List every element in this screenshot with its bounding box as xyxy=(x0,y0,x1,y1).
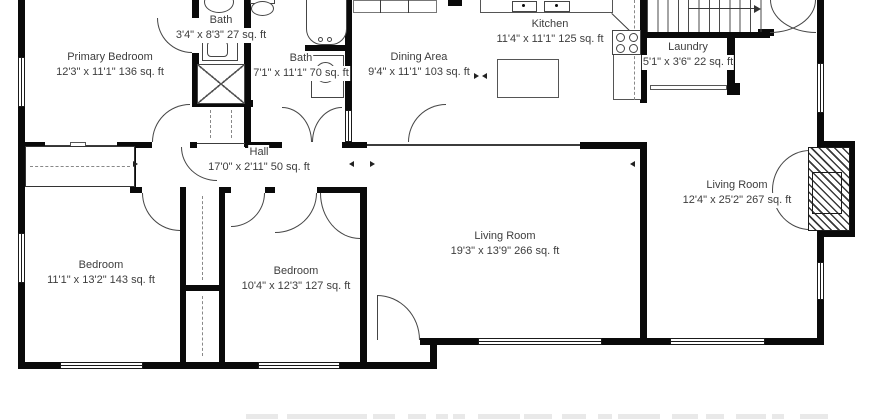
dimension-marker-icon xyxy=(630,161,635,167)
wall xyxy=(143,362,258,369)
room-label-hall: Hall17'0" x 2'11" 50 sq. ft xyxy=(207,145,311,175)
room-label-bedroom-1: Bedroom11'1" x 13'2" 143 sq. ft xyxy=(46,258,156,288)
window xyxy=(817,262,824,300)
wall xyxy=(130,187,142,193)
room-label-laundry: Laundry5'1" x 3'6" 22 sq. ft xyxy=(642,40,734,70)
room-name: Bath xyxy=(289,51,314,66)
dimension-marker-icon xyxy=(370,161,375,167)
room-dimensions: 12'4" x 25'2" 267 sq. ft xyxy=(682,193,793,208)
room-label-living-room-right: Living Room12'4" x 25'2" 267 sq. ft xyxy=(682,178,793,208)
wall xyxy=(342,142,367,148)
window xyxy=(60,362,143,369)
sliding-door xyxy=(650,85,727,90)
toilet xyxy=(204,0,234,13)
burner-icon xyxy=(629,44,638,53)
pocket-door xyxy=(345,110,352,142)
room-dimensions: 7'1" x 11'1" 70 sq. ft xyxy=(252,66,350,81)
preview-strip-segment xyxy=(453,414,465,419)
room-name: Kitchen xyxy=(531,17,570,32)
burner-icon xyxy=(616,33,625,42)
cabinet-divider xyxy=(380,0,381,13)
tub-faucet-icon xyxy=(318,37,323,42)
room-name: Bedroom xyxy=(273,264,320,279)
room-label-dining-area: Dining Area9'4" x 11'1" 103 sq. ft xyxy=(367,50,471,80)
closet-rod-line xyxy=(210,110,211,138)
burner-icon xyxy=(616,44,625,53)
door-arc xyxy=(320,193,360,239)
wall xyxy=(180,285,225,291)
room-dimensions: 9'4" x 11'1" 103 sq. ft xyxy=(367,65,471,80)
tub-faucet-icon xyxy=(327,37,332,42)
wall xyxy=(18,283,25,369)
door-arc xyxy=(231,193,265,227)
wall xyxy=(580,142,647,149)
wall xyxy=(18,107,25,233)
fireplace-wall xyxy=(817,231,855,237)
wall xyxy=(817,0,824,63)
preview-strip-segment xyxy=(478,414,520,419)
window xyxy=(670,338,765,345)
room-label-primary-bedroom: Primary Bedroom12'3" x 11'1" 136 sq. ft xyxy=(55,50,165,80)
room-name: Bath xyxy=(209,13,234,28)
closet-rod-line xyxy=(30,166,130,167)
wall xyxy=(817,237,824,262)
firebox xyxy=(812,172,842,214)
wall xyxy=(340,362,437,369)
preview-strip-segment xyxy=(706,414,724,419)
closet-rod-line xyxy=(202,296,203,356)
room-name: Dining Area xyxy=(390,50,449,65)
stairs-arrow-icon xyxy=(754,5,761,13)
wall xyxy=(643,32,770,38)
room-name: Bedroom xyxy=(78,258,125,273)
wall xyxy=(360,187,367,362)
burner-icon xyxy=(629,33,638,42)
stairs-direction-line xyxy=(688,8,756,9)
window xyxy=(478,338,602,345)
stairs xyxy=(647,0,770,32)
door-arc xyxy=(282,107,312,142)
kitchen-island xyxy=(497,59,559,98)
wall xyxy=(18,362,60,369)
door-arc xyxy=(408,104,446,142)
room-label-bedroom-2: Bedroom10'4" x 12'3" 127 sq. ft xyxy=(241,264,352,294)
closet-rod-line xyxy=(231,110,232,138)
preview-strip-segment xyxy=(618,414,660,419)
wall xyxy=(448,0,462,6)
dimension-marker-icon xyxy=(474,73,479,79)
preview-strip-segment xyxy=(287,414,367,419)
room-dimensions: 11'4" x 11'1" 125 sq. ft xyxy=(495,32,604,47)
door-arc xyxy=(142,193,180,231)
room-dimensions: 19'3" x 13'9" 266 sq. ft xyxy=(450,244,561,259)
preview-strip-segment xyxy=(524,414,552,419)
room-dimensions: 3'4" x 8'3" 27 sq. ft xyxy=(175,28,267,43)
shower xyxy=(197,64,245,104)
preview-strip-segment xyxy=(246,414,278,419)
cabinet-divider xyxy=(408,0,409,13)
wall xyxy=(817,113,824,143)
closet-rod-line xyxy=(202,196,203,280)
wall xyxy=(765,338,824,345)
room-name: Primary Bedroom xyxy=(66,50,154,65)
preview-strip-segment xyxy=(436,414,448,419)
wall xyxy=(727,83,740,95)
preview-strip-segment xyxy=(408,414,426,419)
room-divider-line xyxy=(367,144,580,146)
dimension-marker-icon xyxy=(133,161,138,167)
wall xyxy=(180,187,186,362)
preview-strip-segment xyxy=(800,414,828,419)
room-label-living-room-main: Living Room19'3" x 13'9" 266 sq. ft xyxy=(450,229,561,259)
closet-front-line xyxy=(197,143,245,144)
room-name: Laundry xyxy=(667,40,709,55)
dimension-marker-icon xyxy=(349,161,354,167)
room-dimensions: 12'3" x 11'1" 136 sq. ft xyxy=(55,65,165,80)
sink-drain-icon xyxy=(522,4,525,7)
wall xyxy=(219,187,225,362)
window xyxy=(18,57,25,107)
sink-basin xyxy=(207,41,228,57)
dimension-marker-icon xyxy=(482,73,487,79)
room-name: Hall xyxy=(249,145,270,160)
door-arc xyxy=(275,193,317,233)
window xyxy=(817,63,824,113)
room-dimensions: 10'4" x 12'3" 127 sq. ft xyxy=(241,279,352,294)
room-name: Living Room xyxy=(705,178,768,193)
preview-strip-segment xyxy=(562,414,586,419)
sink-drain-icon xyxy=(555,4,558,7)
window xyxy=(18,233,25,283)
wall xyxy=(602,338,670,345)
preview-strip-segment xyxy=(373,414,395,419)
wall xyxy=(18,0,25,57)
door-arc xyxy=(312,107,342,142)
preview-strip-segment xyxy=(598,414,612,419)
preview-strip-segment xyxy=(672,414,698,419)
wall xyxy=(640,149,647,338)
cabinet xyxy=(353,0,437,13)
door-arc xyxy=(377,295,420,340)
room-label-kitchen: Kitchen11'4" x 11'1" 125 sq. ft xyxy=(495,17,604,47)
door-arc xyxy=(152,104,190,142)
wall xyxy=(265,187,275,193)
preview-strip-segment xyxy=(772,414,784,419)
room-dimensions: 11'1" x 13'2" 143 sq. ft xyxy=(46,273,156,288)
room-dimensions: 17'0" x 2'11" 50 sq. ft xyxy=(207,160,311,175)
room-name: Living Room xyxy=(473,229,536,244)
floor-plan: Primary Bedroom12'3" x 11'1" 136 sq. ftB… xyxy=(0,0,870,420)
wall xyxy=(817,300,824,345)
window xyxy=(258,362,340,369)
preview-strip-segment xyxy=(736,414,766,419)
room-label-bath-1: Bath3'4" x 8'3" 27 sq. ft xyxy=(175,13,267,43)
room-label-bath-2: Bath7'1" x 11'1" 70 sq. ft xyxy=(252,51,350,81)
room-dimensions: 5'1" x 3'6" 22 sq. ft xyxy=(642,55,734,70)
wall xyxy=(420,338,478,345)
